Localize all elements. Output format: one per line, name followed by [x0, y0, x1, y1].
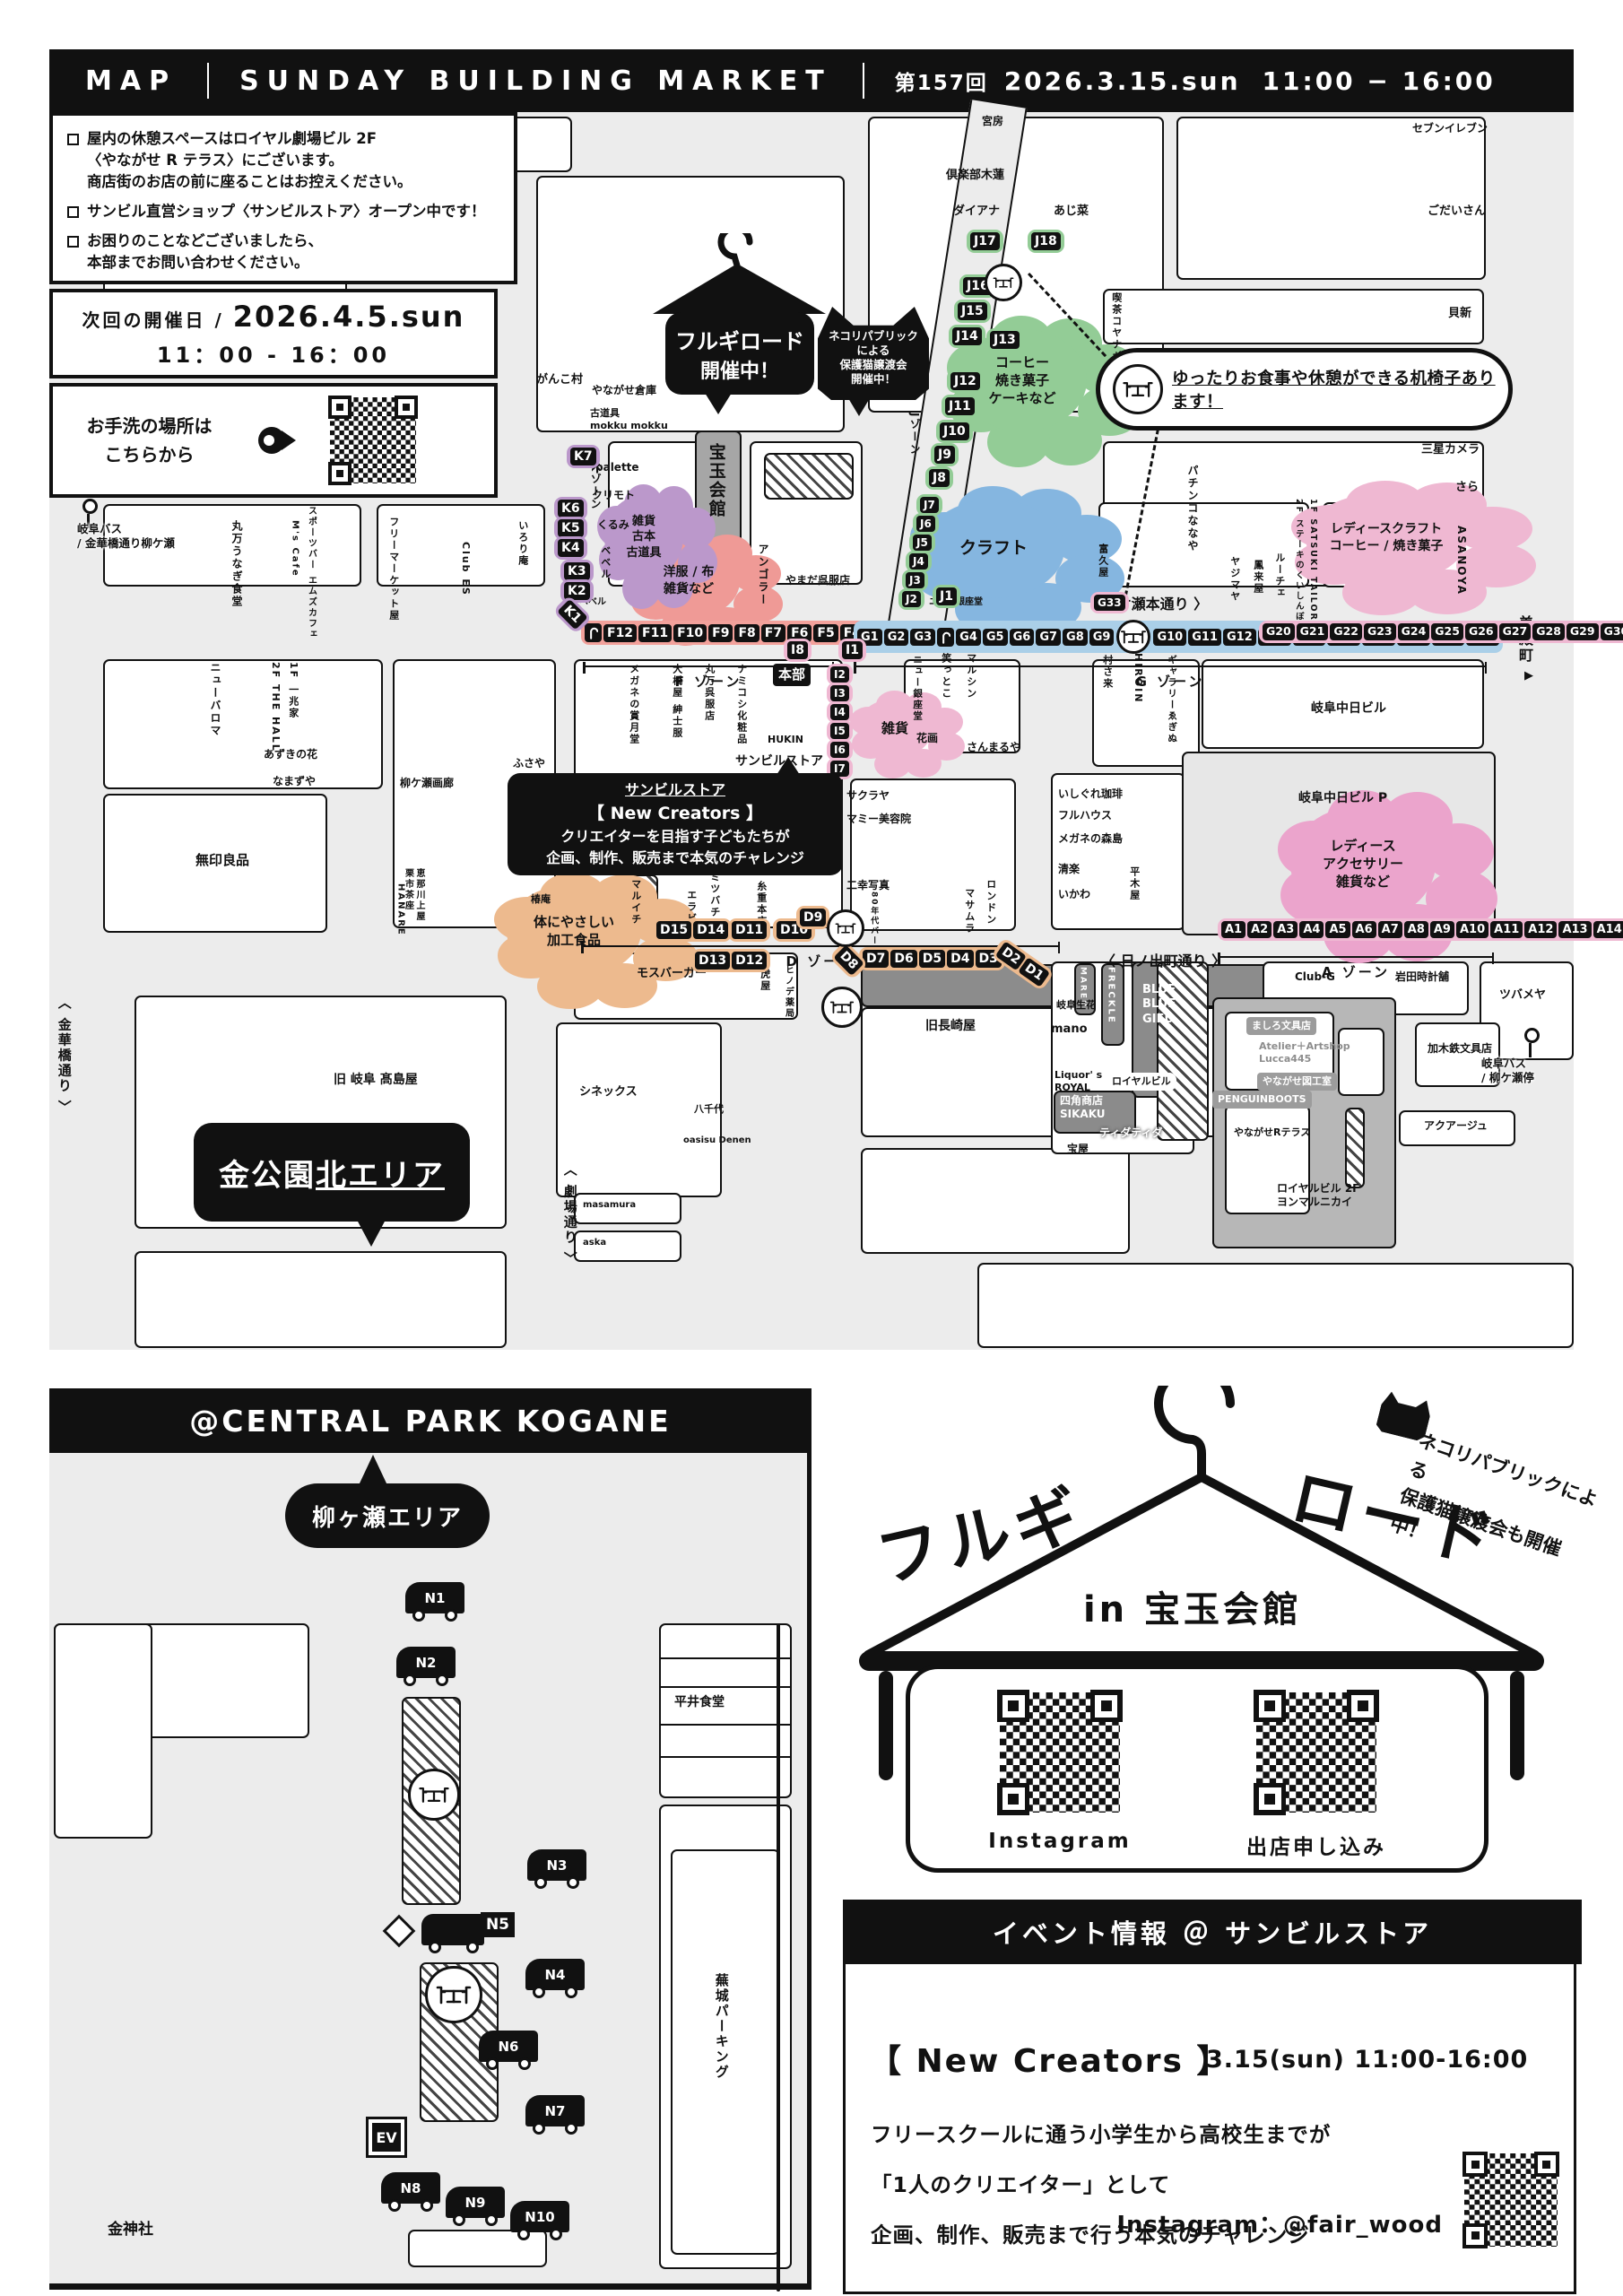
- park-divider-line: [659, 1724, 792, 1726]
- stall-chip: D4: [947, 950, 973, 968]
- building-block: [764, 453, 854, 500]
- stall-chip: G5: [983, 629, 1008, 646]
- stall-chip: I3: [830, 685, 849, 701]
- building-label: masamura: [583, 1200, 636, 1212]
- location-pin-icon: [258, 427, 285, 454]
- building-label: Club ES: [459, 542, 472, 596]
- stall-chip: G33: [1094, 595, 1125, 611]
- event-box-header: イベント情報 ＠ サンビルストア: [843, 1900, 1582, 1964]
- stall-chip: G4: [956, 629, 981, 646]
- zone-band: G33: [1090, 592, 1129, 613]
- food-truck-n8: N8: [381, 2172, 440, 2210]
- building-label: さんまるや: [967, 741, 1020, 754]
- stall-chip: G30: [1601, 623, 1623, 640]
- yanagase-area-pill: 柳ヶ瀬エリア: [285, 1483, 490, 1548]
- event-info-box: イベント情報 ＠ サンビルストア 【 New Creators 】 3.15(s…: [843, 1900, 1576, 2294]
- stall-chip: G28: [1532, 623, 1565, 640]
- kin-park-pointer: [357, 1220, 386, 1247]
- building-label: 八千代: [694, 1103, 724, 1116]
- sunbiru-store-callout: サンビルストア 【 New Creators 】 クリエイターを目指す子どもたち…: [508, 773, 843, 875]
- zone-band: K4: [554, 536, 587, 560]
- building-label: いろり庵: [516, 520, 529, 567]
- hirai-shokudo-label: 平井食堂: [674, 1695, 725, 1711]
- toilet-box: お手洗の場所は こちらから: [49, 383, 498, 498]
- building-label: 〈 日ノ出町通り 〉: [1101, 952, 1226, 970]
- food-truck-n10: N10: [510, 2201, 569, 2239]
- stall-chip: F5: [813, 624, 838, 642]
- event-instagram: Instagram：@fair_wood: [1116, 2206, 1443, 2239]
- food-truck-n6: N6: [479, 2031, 538, 2068]
- stall-chip: G8: [1063, 629, 1088, 646]
- stall-chip: G12: [1223, 629, 1256, 646]
- neko-callout-line: 保護猫譲渡会: [839, 358, 907, 372]
- building-label: ルーチェ: [1273, 552, 1286, 599]
- building-block: [135, 1251, 507, 1348]
- venue-label: in 宝玉会館: [1058, 1580, 1327, 1632]
- notice-box: 屋内の休憩スペースはロイヤル劇場ビル 2F 〈やながせ R テラス〉にございます…: [49, 112, 517, 284]
- neko-callout-line: 開催中！: [851, 372, 896, 387]
- category-cloud: コーヒー 焼き菓子 ケーキなど: [952, 325, 1092, 436]
- hanger-hook-icon: [585, 623, 602, 642]
- building-label: あじ菜: [1054, 204, 1089, 219]
- stall-chip: K6: [558, 500, 584, 517]
- building-label: ましろ文具店: [1246, 1017, 1316, 1035]
- bus-stop-label: 岐阜バス / 柳ケ瀬停: [1481, 1057, 1534, 1084]
- event-datetime: 3.15(sun) 11:00-16:00: [1206, 2046, 1528, 2074]
- stall-chip: A13: [1558, 921, 1591, 938]
- building-label: ごだいさん: [1428, 204, 1486, 219]
- building-label: oasisu Denen: [683, 1135, 751, 1147]
- building-label: 宮房: [982, 115, 1003, 128]
- building-label: palette: [595, 461, 639, 474]
- bus-stop-label: 岐阜バス / 金華橋通り柳ケ瀬: [77, 522, 175, 550]
- zone-band: D11: [728, 918, 770, 942]
- stall-chip: A10: [1456, 921, 1488, 938]
- building-label: mano: [1051, 1022, 1088, 1037]
- building-label: 旧長崎屋: [925, 1019, 976, 1035]
- stall-chip: D9: [800, 909, 826, 926]
- header-divider: [863, 63, 864, 99]
- building-label: 本部: [773, 664, 811, 686]
- building-label: ロイヤルビル 2F ヨンマルニカイ: [1277, 1182, 1359, 1209]
- food-truck-n7: N7: [525, 2095, 585, 2133]
- category-cloud: レディース アクセサリー 雑貨など: [1284, 800, 1442, 927]
- stall-chip: D6: [890, 950, 916, 968]
- stall-chip: G7: [1036, 629, 1061, 646]
- food-truck-n9: N9: [446, 2187, 505, 2224]
- building-label: 宝屋: [1067, 1143, 1089, 1156]
- stall-chip: D12: [732, 952, 767, 970]
- building-label: あずきの花: [264, 748, 317, 761]
- cloud-label: コーヒー 焼き菓子 ケーキなど: [952, 325, 1092, 436]
- stall-chip: I6: [830, 742, 849, 758]
- building-label: いかわ: [1058, 888, 1090, 901]
- bullet-square: [67, 206, 79, 218]
- toilet-text: お手洗の場所は こちらから: [53, 412, 246, 469]
- building-label: アンゴラー: [756, 544, 769, 606]
- building-label: 岐阜中日ビル: [1311, 701, 1386, 717]
- yanagase-area-label: 柳ヶ瀬エリア: [312, 1500, 463, 1533]
- category-cloud: 体にやさしい 加工食品: [500, 881, 647, 981]
- building-label: 二幸写真: [846, 879, 890, 892]
- zone-measure-line: A ゾーン: [1218, 956, 1494, 958]
- building-label: がんこ村: [536, 373, 583, 387]
- category-cloud: レディースクラフト コーヒー / 焼き菓子: [1298, 489, 1474, 587]
- building-label: サクラヤ: [846, 789, 890, 803]
- park-divider-line: [659, 1756, 792, 1758]
- stall-chip: A11: [1490, 921, 1523, 938]
- notice-item-1: 屋内の休憩スペースはロイヤル劇場ビル 2F 〈やながせ R テラス〉にございます…: [67, 128, 499, 193]
- furugi-callout-pointer: [705, 393, 732, 414]
- zone-band: J9: [931, 443, 959, 466]
- event-desc-line1: フリースクールに通う小学生から高校生までが: [871, 2118, 1331, 2148]
- stall-chip: A14: [1593, 921, 1623, 938]
- sunbiru-callout-pointer: [777, 757, 800, 775]
- building-label: フルハウス: [1058, 809, 1112, 822]
- notice-item-2: サンビル直営ショップ〈サンビルストア〉オープン中です！: [67, 201, 499, 222]
- building-label: Liquor' s ROYAL: [1055, 1069, 1102, 1094]
- building-label: ニューバロマ: [208, 662, 221, 737]
- furugi-callout-line1: フルギロード: [675, 324, 804, 355]
- building-label: 宝玉会館: [705, 443, 726, 518]
- building-label: ギャラリーゑぎぬ: [1166, 655, 1177, 744]
- area-pill-pointer: [359, 1455, 387, 1485]
- building-label: 貝新: [1448, 307, 1471, 321]
- building-block: [977, 1263, 1574, 1348]
- kin-park-name: 金公園: [219, 1151, 316, 1195]
- zone-band: J18: [1028, 230, 1064, 253]
- table-chairs-icon: [827, 909, 864, 947]
- table-chairs-icon: [425, 1966, 482, 2023]
- building-label: フリーマーケット屋: [387, 517, 400, 622]
- application-qr-label: 出店申し込み: [1218, 1830, 1415, 1860]
- sunbiru-callout-line4: 企画、制作、販売まで本気のチャレンジ: [546, 848, 804, 869]
- building-label: 古道具 mokku mokku: [590, 407, 668, 432]
- building-label: メガネの賞月堂: [628, 664, 640, 745]
- building-label: 〈 劇場通り 〉: [561, 1162, 578, 1266]
- building-label: やながせ倉庫: [592, 384, 656, 397]
- instagram-qr-label: Instagram: [961, 1830, 1159, 1853]
- stall-chip: F8: [734, 624, 759, 642]
- stall-chip: I8: [787, 641, 808, 659]
- stall-chip: K5: [558, 519, 584, 537]
- header-title: SUNDAY BUILDING MARKET: [239, 65, 832, 97]
- stall-chip: G22: [1330, 623, 1362, 640]
- building-label: 村さ来: [1101, 655, 1114, 690]
- cloud-label: 雑貨: [854, 696, 936, 761]
- header-bar: MAP SUNDAY BUILDING MARKET 第157回 2026.3.…: [49, 49, 1574, 112]
- building-label: 丸万呉服店: [703, 664, 716, 722]
- zone-band: D13D12: [691, 949, 770, 972]
- header-edition: 第157回: [895, 65, 988, 96]
- hanger-icon: [647, 233, 831, 317]
- table-chairs-icon: [408, 1769, 460, 1821]
- bullet-square: [67, 134, 79, 145]
- food-truck-n2: N2: [396, 1647, 456, 1684]
- building-label: やまだ呉服店: [785, 574, 850, 587]
- furugi-road-callout: フルギロード 開催中！: [665, 312, 814, 395]
- zone-band: D15D14: [653, 918, 732, 942]
- category-cloud: 雑貨: [854, 696, 936, 761]
- header-time: 11:00 − 16:00: [1263, 66, 1496, 96]
- building-label: やながせ図工室: [1257, 1073, 1337, 1091]
- building-label: スポーツバー エムズカフェ: [305, 506, 317, 639]
- stall-chip: A2: [1247, 921, 1271, 938]
- seating-callout: ゆったりお食事や休憩ができる机椅子あります！: [1096, 348, 1513, 430]
- header-date: 2026.3.15.sun: [1004, 66, 1241, 96]
- building-label: 清楽: [1058, 863, 1080, 876]
- building-label: HIROIN: [1132, 653, 1144, 703]
- building-label: 大橋屋 紳士服: [671, 664, 683, 739]
- event-title: 【 New Creators 】: [869, 2035, 1230, 2082]
- building-block: [1345, 1108, 1365, 1188]
- building-label: アクアージュ: [1424, 1119, 1488, 1133]
- stall-chip: K3: [564, 562, 590, 580]
- building-label: 三星カメラ: [1421, 443, 1480, 457]
- stall-chip: G10: [1153, 629, 1186, 646]
- building-label: 岩田時計舗: [1395, 970, 1449, 984]
- zone-band: G20G21G22G23G24G25G26G27G28G29G30G31G32: [1259, 621, 1623, 643]
- building-label: シネックス: [579, 1085, 638, 1100]
- neko-callout-line: による: [856, 344, 890, 358]
- building-label: BLUE BLUE GIFU: [1142, 983, 1176, 1027]
- stall-chip: J17: [970, 232, 1000, 250]
- application-qr-code: [1254, 1690, 1379, 1815]
- stall-chip: G25: [1431, 623, 1463, 640]
- stall-chip: D14: [693, 921, 728, 939]
- sunbiru-callout-subtitle: 【 New Creators 】: [587, 801, 763, 827]
- stall-chip: I1: [842, 641, 863, 659]
- building-label: ▶: [1524, 669, 1533, 683]
- next-time-value: 11：00 - 16：00: [157, 337, 390, 369]
- building-label: M's Cafe: [289, 520, 300, 578]
- stall-chip: G20: [1263, 623, 1295, 640]
- building-label: 富久屋: [1097, 544, 1109, 578]
- zone-band: J15: [954, 300, 991, 323]
- zone-band: I1: [838, 639, 866, 662]
- building-label: FRECKLE: [1105, 967, 1116, 1024]
- building-label: パチンコななや: [1185, 465, 1199, 552]
- bullet-square: [67, 236, 79, 248]
- kanjinja-label: 金神社: [108, 2221, 153, 2239]
- building-label: ツバメヤ: [1499, 988, 1546, 1003]
- food-truck-n3: N3: [527, 1849, 586, 1887]
- building-label: セブンイレブン: [1412, 122, 1488, 135]
- stall-chip: D11: [732, 921, 767, 939]
- elevator-label: EV: [366, 2117, 407, 2158]
- building-label: ナミコシ化粧品: [735, 664, 748, 745]
- stall-chip: I4: [830, 704, 849, 720]
- zone-band: J8: [925, 466, 953, 490]
- stall-chip: G9: [1089, 629, 1115, 646]
- stall-chip: F12: [603, 624, 637, 642]
- stall-chip: G3: [910, 629, 935, 646]
- next-date-box: 次回の開催日 / 2026.4.5.sun 11：00 - 16：00: [49, 289, 498, 378]
- cloud-label: レディースクラフト コーヒー / 焼き菓子: [1298, 489, 1474, 587]
- zone-band: D7D6D5D4D3: [859, 947, 1005, 970]
- building-label: 柳ケ瀬画廊: [400, 777, 454, 790]
- building-label: ダイアナ: [953, 204, 1000, 219]
- cloud-label: レディース アクセサリー 雑貨など: [1284, 800, 1442, 927]
- building-label: 平木屋: [1128, 866, 1141, 901]
- header-divider: [207, 63, 209, 99]
- building-label: HANARE: [395, 883, 406, 936]
- building-label: 倶楽部木蓮: [946, 169, 1004, 183]
- stall-chip: D15: [656, 921, 691, 939]
- food-truck-n5: N5: [421, 1914, 515, 1952]
- building-label: ヤジマヤ: [1228, 556, 1241, 603]
- building-label: Kゾーン: [588, 463, 602, 510]
- building-label: 鳳来屋: [1252, 560, 1264, 595]
- park-divider-line: [659, 1686, 792, 1688]
- table-chairs-icon: [1113, 364, 1163, 414]
- building-label: ふさや: [513, 757, 545, 770]
- building-label: Club-G: [1295, 970, 1335, 984]
- stall-chip: I5: [830, 723, 849, 739]
- stall-chip: A12: [1524, 921, 1557, 938]
- building-label: 笑っとこ: [940, 653, 952, 700]
- building-label: 旧 岐阜 髙島屋: [334, 1073, 418, 1089]
- stall-chip: F11: [638, 624, 672, 642]
- stall-chip: K4: [558, 539, 584, 557]
- category-cloud: クラフト: [916, 495, 1071, 603]
- sunbiru-callout-title: サンビルストア: [625, 779, 725, 801]
- next-date-label: 次回の開催日 /: [82, 309, 224, 331]
- toilet-qr-code: [328, 396, 418, 485]
- building-block: [861, 1148, 1130, 1254]
- hanger-hook-icon: [937, 628, 954, 647]
- cloud-label: クラフト: [916, 495, 1071, 603]
- table-chairs-icon: [1116, 620, 1150, 654]
- stall-chip: F7: [761, 624, 785, 642]
- stall-chip: G11: [1188, 629, 1221, 646]
- building-label: 80年代バー: [868, 891, 878, 946]
- stall-chip: G29: [1567, 623, 1599, 640]
- building-label: HUKIN: [768, 734, 803, 746]
- stall-chip: F9: [708, 624, 733, 642]
- stall-chip: D13: [695, 952, 730, 970]
- zone-band: K7: [567, 445, 600, 468]
- cloud-label: 体にやさしい 加工食品: [500, 881, 647, 981]
- building-label: Jゾーン: [907, 413, 921, 456]
- building-label: ロンドン: [985, 879, 997, 926]
- stall-chip: K7: [570, 448, 596, 465]
- building-block: [103, 659, 383, 789]
- neko-callout-line: ネコリパブリック: [829, 329, 918, 344]
- food-truck-n4: N4: [525, 1959, 585, 1996]
- food-truck-n1: N1: [405, 1582, 464, 1620]
- building-label: なまずや: [273, 775, 316, 788]
- seating-callout-text: ゆったりお食事や休憩ができる机椅子あります！: [1172, 366, 1508, 413]
- header-map: MAP: [85, 65, 177, 97]
- building-label: 1F 一兆家: [287, 662, 299, 719]
- notice-item-3: お困りのことなどございましたら、 本部までお問い合わせください。: [67, 230, 499, 274]
- category-cloud: 雑貨 古本 古道具: [601, 491, 687, 583]
- stall-chip: G24: [1398, 623, 1430, 640]
- building-label: PENGUINBOOTS: [1212, 1091, 1312, 1109]
- table-chairs-icon: [821, 987, 863, 1028]
- stall-chip: J8: [929, 469, 950, 487]
- building-label: 〈 金華橋通り 〉: [56, 996, 73, 1115]
- building-label: 2F THE HALL: [269, 662, 282, 752]
- building-block: [1176, 117, 1486, 280]
- stall-chip: A1: [1221, 921, 1245, 938]
- stall-chip: G6: [1010, 629, 1035, 646]
- kabushiro-parking-label: 蕪城パーキング: [713, 1973, 730, 2080]
- stall-chip: I2: [830, 666, 849, 683]
- building-label: いしぐれ珈琲: [1058, 787, 1123, 801]
- neko-callout-pointer: [848, 398, 870, 416]
- stall-chip: F10: [673, 624, 707, 642]
- next-date-value: 2026.4.5.sun: [233, 300, 465, 334]
- zone-band: D9: [796, 906, 829, 929]
- building-block: [1103, 289, 1484, 344]
- stall-chip: J15: [958, 302, 987, 320]
- building-label: ティダティダ: [1099, 1126, 1163, 1140]
- park-divider-line: [659, 1657, 792, 1659]
- zone-band: J17: [967, 230, 1003, 253]
- building-label: 四角商店 SIKAKU: [1060, 1094, 1106, 1121]
- building-label: マルシン: [965, 653, 977, 700]
- instagram-qr-code: [997, 1690, 1123, 1815]
- building-label: マサムラ: [963, 888, 976, 935]
- park-block: [54, 1623, 152, 1839]
- table-chairs-icon: [985, 264, 1022, 301]
- building-label: 岐阜生花: [1056, 999, 1096, 1012]
- building-label: 丸万うなぎ食堂: [230, 520, 243, 608]
- building-label: ヒノデ薬局: [782, 965, 794, 1019]
- event-desc-line2: 「1人のクリエイター」として: [871, 2168, 1170, 2198]
- stall-chip: G2: [884, 629, 909, 646]
- building-label: Atelier＋Artshop Lucca445: [1259, 1040, 1350, 1065]
- kin-park-callout: 金公園 北エリア: [194, 1123, 470, 1222]
- cloud-label: 雑貨 古本 古道具: [601, 491, 687, 583]
- kin-park-area: 北エリア: [316, 1151, 445, 1195]
- park-title: @CENTRAL PARK KOGANE: [189, 1404, 671, 1439]
- building-label: 無印良品: [195, 852, 249, 869]
- furugi-callout-line2: 開催中！: [700, 355, 779, 384]
- stall-chip: J9: [934, 446, 955, 464]
- stall-chip: G23: [1364, 623, 1396, 640]
- park-block: [659, 1623, 792, 1798]
- building-label: メガネの森島: [1058, 832, 1123, 846]
- sunbiru-callout-line3: クリエイターを目指す子どもたちが: [560, 826, 789, 848]
- bus-stop-icon: [1524, 1028, 1540, 1057]
- stall-chip: D7: [863, 950, 889, 968]
- zone-band: I8: [784, 639, 811, 662]
- building-label: aska: [583, 1238, 606, 1249]
- stall-chip: D5: [919, 950, 945, 968]
- stall-chip: G21: [1297, 623, 1329, 640]
- stall-chip: G26: [1465, 623, 1497, 640]
- building-label: 加木鉄文具店: [1428, 1042, 1492, 1056]
- park-title-bar: @CENTRAL PARK KOGANE: [49, 1388, 811, 1453]
- building-label: ロイヤルビル: [1107, 1073, 1176, 1091]
- building-label: やながせRテラス: [1234, 1126, 1310, 1139]
- stall-chip: G27: [1499, 623, 1532, 640]
- building-label: マミー美容院: [846, 813, 911, 826]
- event-qr-code: [1462, 2152, 1559, 2248]
- stall-chip: J18: [1031, 232, 1061, 250]
